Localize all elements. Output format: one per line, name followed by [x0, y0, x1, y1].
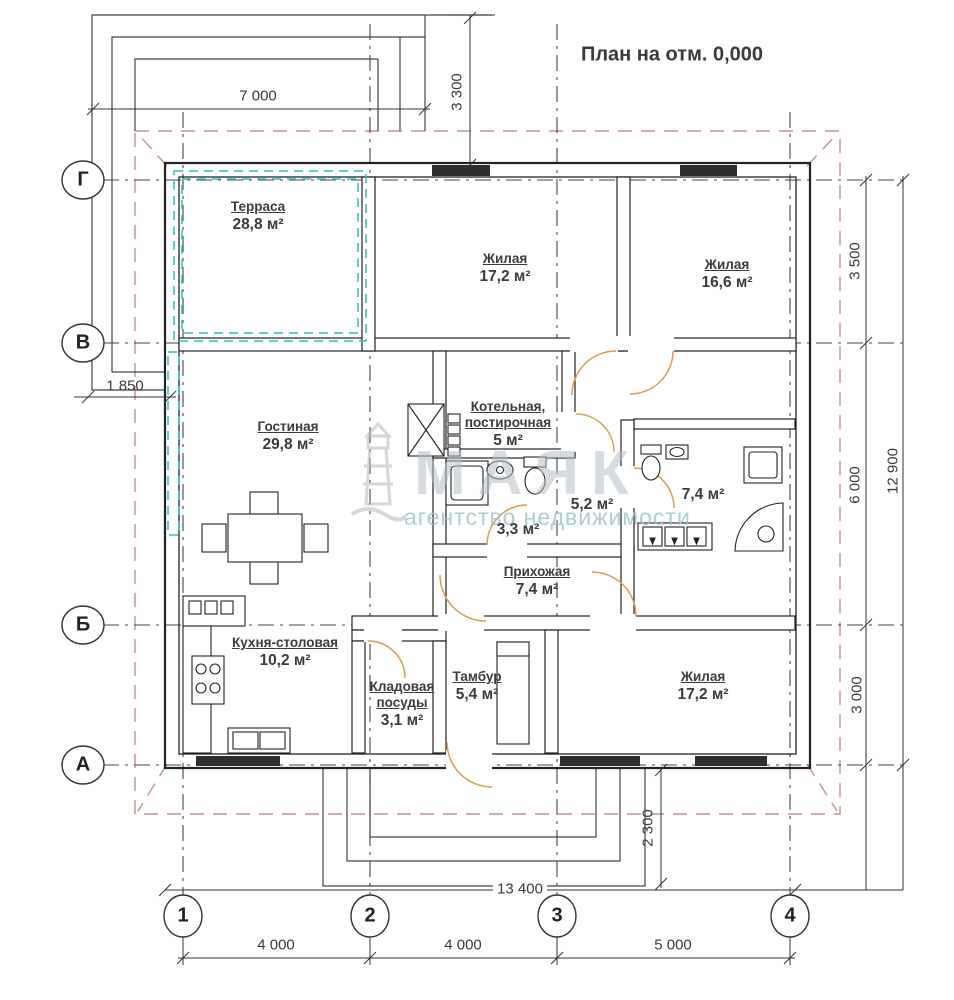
axis-col-1: 1 [177, 905, 188, 928]
dim-top-width: 7 000 [239, 88, 277, 105]
axis-row-b: Б [76, 614, 90, 637]
dim-span-1-2: 4 000 [257, 937, 295, 954]
axis-col-2: 2 [364, 905, 375, 928]
room-label-hallway: Прихожая 7,4 м² [504, 564, 571, 600]
room-label-living-topright: Жилая 16,6 м² [701, 257, 752, 293]
room-label-vestibule: Тамбур 5,4 м² [453, 669, 502, 705]
dim-bottom-total: 13 400 [493, 881, 547, 898]
page-title: План на отм. 0,000 [581, 44, 763, 67]
room-label-terrace: Терраса 28,8 м² [231, 199, 285, 235]
axis-col-3: 3 [551, 905, 562, 928]
room-label-boiler: Котельная, постирочная 5 м² [460, 399, 556, 451]
dim-span-3-4: 5 000 [654, 937, 692, 954]
axis-row-v: В [76, 332, 90, 355]
dim-span-2-3: 4 000 [444, 937, 482, 954]
dim-right-6000: 6 000 [847, 466, 864, 504]
dim-left-offset: 1 850 [106, 378, 144, 395]
dim-right-3000: 3 000 [849, 676, 866, 714]
room-label-living-bottom: Жилая 17,2 м² [677, 669, 728, 705]
room-label-shower: 3,3 м² [497, 520, 539, 540]
dim-right-total: 12 900 [885, 448, 902, 494]
room-label-kitchen: Кухня-столовая 10,2 м² [232, 635, 338, 671]
room-label-pantry: Кладовая посуды 3,1 м² [362, 679, 442, 731]
room-label-hall-small: 5,2 м² [571, 495, 613, 515]
dim-right-3500: 3 500 [847, 242, 864, 280]
watermark-tagline: агентство недвижимости [404, 504, 691, 531]
dim-top-offset: 3 300 [449, 73, 466, 111]
room-label-living-top: Жилая 17,2 м² [479, 251, 530, 287]
room-label-bathroom: 7,4 м² [682, 485, 724, 505]
axis-row-g: Г [77, 169, 88, 192]
room-label-livingroom: Гостиная 29,8 м² [257, 419, 318, 455]
axis-row-a: А [76, 754, 90, 777]
axis-col-4: 4 [784, 905, 795, 928]
floor-plan-page: МАЯК агентство недвижимости План на отм.… [0, 0, 954, 1000]
dim-porch-2300: 2 300 [640, 809, 657, 847]
lighthouse-icon [350, 418, 406, 528]
